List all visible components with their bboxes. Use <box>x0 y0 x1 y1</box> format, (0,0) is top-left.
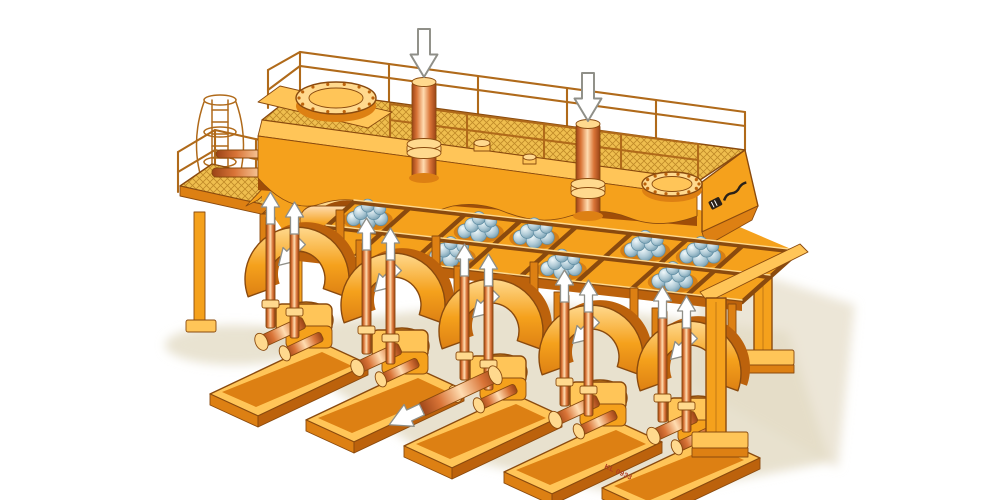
press-down-arrow-icon <box>575 73 602 121</box>
manhole-bolt <box>646 187 649 190</box>
manhole-bolt <box>343 83 346 86</box>
manhole-bolt <box>326 83 329 86</box>
manhole-bolt <box>311 85 314 88</box>
manhole-bolt <box>695 178 698 181</box>
manhole-bolt <box>368 102 371 105</box>
manhole-bolt <box>311 107 314 110</box>
manhole-bolt <box>371 96 374 99</box>
manhole-cover <box>296 82 376 122</box>
manhole-bolt <box>326 110 329 113</box>
machine-illustration: KL 0933 <box>0 0 1000 500</box>
manhole-bolt <box>646 178 649 181</box>
press-cylinder <box>571 120 605 222</box>
manhole-bolt <box>676 192 679 195</box>
manhole-bolt <box>695 187 698 190</box>
deck-stub <box>474 140 490 152</box>
press-cylinder <box>407 78 441 184</box>
deck-stub <box>523 154 536 164</box>
manhole-bolt <box>301 102 304 105</box>
manhole-bolt <box>664 173 667 176</box>
manhole-bolt <box>687 190 690 193</box>
manhole-bolt <box>643 182 646 185</box>
manhole-bolt <box>357 107 360 110</box>
manhole-bolt <box>297 96 300 99</box>
manhole-bolt <box>357 85 360 88</box>
manhole-bolt <box>687 175 690 178</box>
manhole-bolt <box>697 182 700 185</box>
manhole-bolt <box>368 90 371 93</box>
illustration-page: KL 0933 <box>0 0 1000 500</box>
manhole-bolt <box>343 110 346 113</box>
manhole-bolt <box>664 192 667 195</box>
manhole-cover <box>642 172 702 202</box>
manhole-bolt <box>654 175 657 178</box>
manhole-bolt <box>654 190 657 193</box>
manhole-bolt <box>676 173 679 176</box>
platform-foot <box>186 320 216 332</box>
manhole-bolt <box>301 90 304 93</box>
platform-leg <box>194 212 205 324</box>
